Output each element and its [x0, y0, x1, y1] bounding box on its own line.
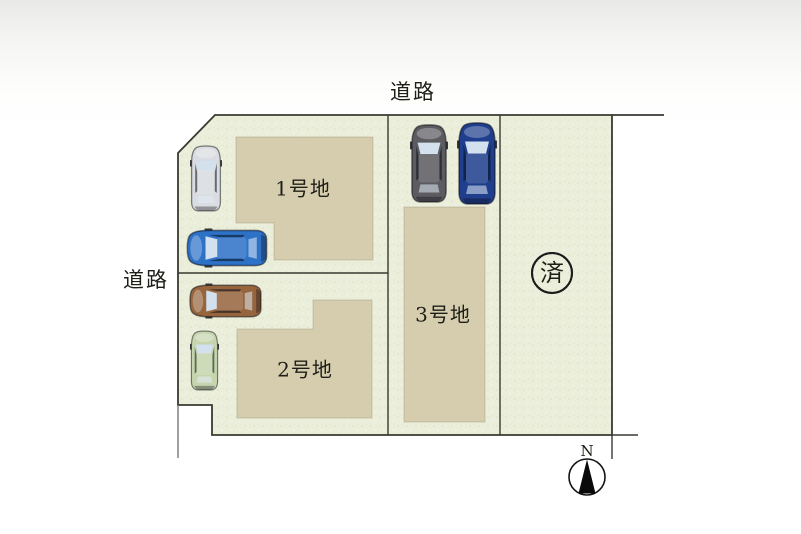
road-label-top: 道路	[390, 76, 436, 106]
sold-badge-text: 済	[540, 261, 564, 285]
lot3-label: 3号地	[415, 299, 471, 328]
silver-car	[190, 141, 222, 216]
lot1-label: 1号地	[275, 173, 331, 202]
green-car	[190, 324, 219, 397]
road-label-left: 道路	[123, 264, 169, 294]
navy-car	[457, 120, 497, 207]
sold-badge: 済	[531, 252, 573, 294]
brown-car	[186, 284, 266, 319]
site-plan-canvas: 道路 道路 1号地 2号地 3号地 済 N	[0, 0, 801, 534]
compass	[569, 459, 605, 495]
dark-gray-car	[410, 122, 448, 205]
blue-car	[186, 228, 268, 268]
lot2-label: 2号地	[277, 354, 333, 383]
compass-north-label: N	[580, 442, 593, 460]
